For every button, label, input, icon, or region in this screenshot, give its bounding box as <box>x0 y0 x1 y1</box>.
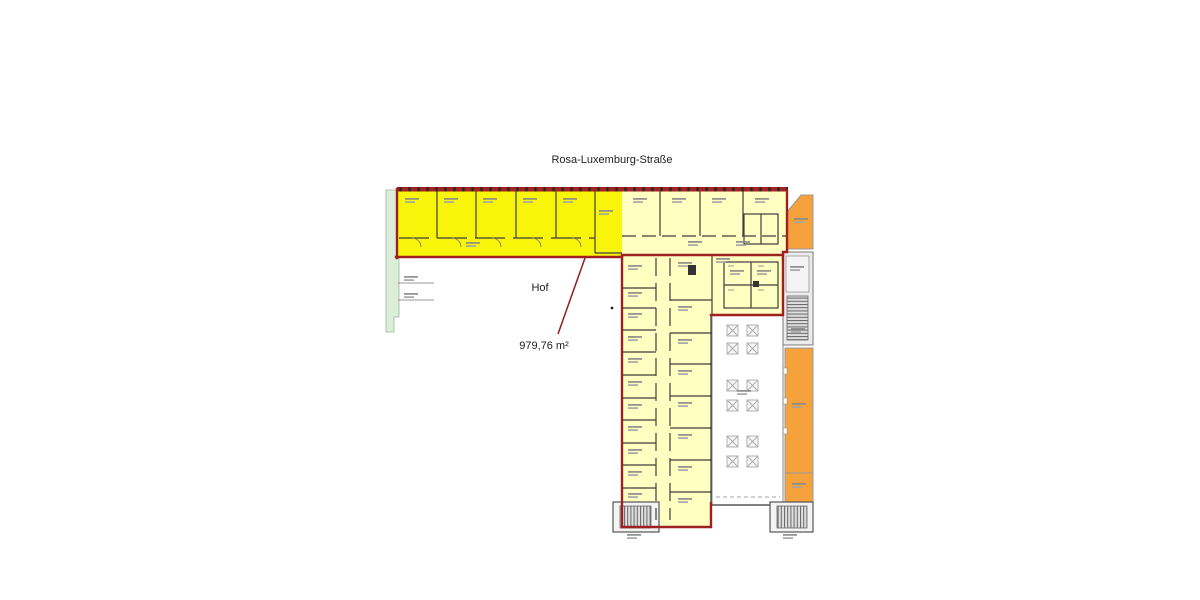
street-label: Rosa-Luxemburg-Straße <box>551 154 672 166</box>
highlighted-wing <box>397 191 622 257</box>
stairwell-right-top <box>783 252 813 345</box>
floor-plan: Rosa-Luxemburg-Straße Hof 979,76 m² <box>0 0 1200 600</box>
column-marker <box>727 456 738 467</box>
column-marker <box>727 380 738 391</box>
green-strip-leaders <box>398 283 434 300</box>
reference-dot <box>611 307 614 310</box>
column-marker <box>747 456 758 467</box>
adjacent-building-tall <box>782 348 813 473</box>
courtyard-label: Hof <box>531 282 549 294</box>
column-marker <box>747 325 758 336</box>
street-facade-windows <box>397 187 788 192</box>
elevator-shaft <box>688 265 696 275</box>
area-label: 979,76 m² <box>519 340 569 352</box>
stairwell-bottom-right <box>770 502 813 532</box>
shaft <box>753 281 759 287</box>
column-marker <box>747 400 758 411</box>
column-marker <box>747 436 758 447</box>
area-leader-line <box>558 258 585 334</box>
column-marker <box>747 343 758 354</box>
column-marker <box>747 380 758 391</box>
floor-plan-page: Rosa-Luxemburg-Straße Hof 979,76 m² <box>0 0 1200 600</box>
column-marker <box>727 436 738 447</box>
column-marker <box>727 343 738 354</box>
hall <box>712 315 783 505</box>
column-marker <box>727 325 738 336</box>
column-marker <box>727 400 738 411</box>
